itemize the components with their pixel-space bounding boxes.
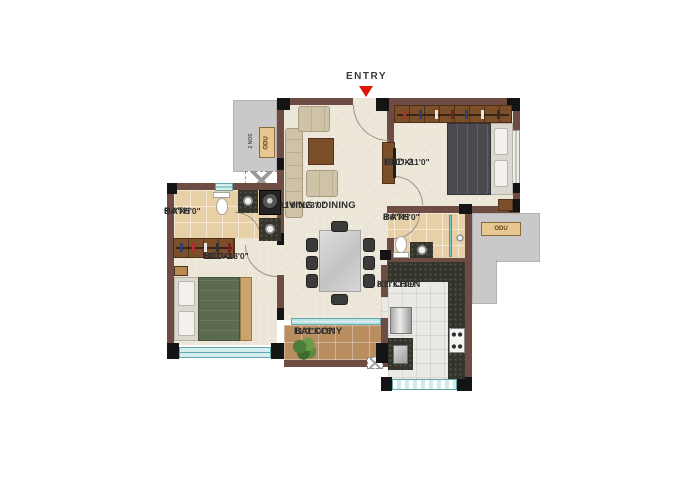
wall [233, 183, 284, 190]
bed2-pillow [494, 128, 508, 155]
bath1-dims: 9'4"X5'0" [164, 206, 201, 217]
bed1-window [179, 347, 271, 358]
bed1-pillow [178, 311, 195, 336]
balcony-sliding-door [291, 318, 381, 325]
coffee-table [308, 138, 334, 165]
column [459, 204, 472, 214]
dining-chair [306, 238, 318, 252]
column [381, 377, 392, 391]
bath2-sink [415, 243, 429, 257]
column [167, 343, 179, 359]
bed1-nightstand [174, 266, 188, 276]
odu-left-label: ODU [264, 136, 270, 149]
bath1-toilet [216, 198, 228, 215]
dining-chair [306, 256, 318, 270]
exterior-utility-ledge-right-lower [472, 260, 497, 304]
bed1-blanket [198, 277, 240, 341]
bed2-dims: 13'0"X11'0" [384, 157, 430, 168]
column [380, 250, 391, 260]
wardrobe-rod [176, 247, 232, 249]
dining-chair [306, 274, 318, 288]
dining-table [319, 230, 361, 292]
column [512, 183, 520, 193]
bed2-blanket [447, 123, 491, 195]
kitchen-sink [393, 345, 408, 364]
bed2-pillow [494, 160, 508, 187]
plant [292, 337, 316, 361]
wardrobe-rod [397, 114, 509, 116]
shower-drain [455, 233, 465, 243]
odu-right-label: ODU [494, 226, 507, 232]
column [277, 308, 284, 320]
wall [465, 213, 472, 382]
kitchen-window [392, 379, 457, 390]
odu-unit-right: ODU [481, 222, 521, 236]
stove [449, 328, 465, 353]
armchair [298, 106, 330, 132]
entry-arrow-icon [359, 86, 373, 97]
bed1-pillow [178, 281, 195, 306]
bath1-window [215, 183, 233, 191]
bath2-toilet [395, 236, 407, 253]
bed2-side-table [498, 199, 513, 211]
column [376, 343, 388, 363]
entry-label: ENTRY [329, 71, 404, 83]
living-dims: 11'0"X23'0" [280, 200, 326, 211]
dining-chair [331, 221, 348, 232]
column [457, 377, 472, 391]
shower-partition [449, 215, 452, 257]
wall [389, 98, 520, 105]
balcony-dims: 11'0"X4'6" [294, 326, 335, 337]
column [277, 98, 290, 110]
wardrobe-items [403, 110, 406, 119]
bed2-wardrobe [394, 105, 512, 123]
bed1-dims: 11'0"X13'0" [203, 251, 249, 262]
washing-machine-drum [263, 194, 278, 209]
dining-chair [331, 294, 348, 305]
floor-plan: ODU 2 NOS ODU ENTRY LIVING / DINING 11'0… [0, 0, 689, 499]
column [277, 158, 284, 170]
bath1-sink [241, 194, 255, 208]
armchair [306, 170, 338, 197]
column [167, 183, 177, 194]
dining-chair [363, 274, 375, 288]
odu-left-qty: 2 NOS [248, 128, 258, 154]
dining-chair [363, 256, 375, 270]
bed1-footboard [240, 277, 252, 341]
exterior-utility-ledge-right [472, 213, 540, 262]
kitchen-dims: 8'2"X13'0" [377, 279, 418, 290]
dining-chair [363, 238, 375, 252]
odu-unit-left: ODU [259, 127, 275, 158]
bath2-toilet-tank [393, 252, 409, 258]
column [271, 343, 284, 359]
bath2-dims: 8'6"X5'0" [383, 212, 420, 223]
bed1-door-threshold [277, 245, 284, 275]
kitchen-door-threshold [381, 297, 388, 318]
wardrobe-items [180, 243, 183, 252]
utility-sink [263, 222, 277, 236]
bed2-window [512, 130, 520, 190]
fridge [390, 307, 412, 334]
